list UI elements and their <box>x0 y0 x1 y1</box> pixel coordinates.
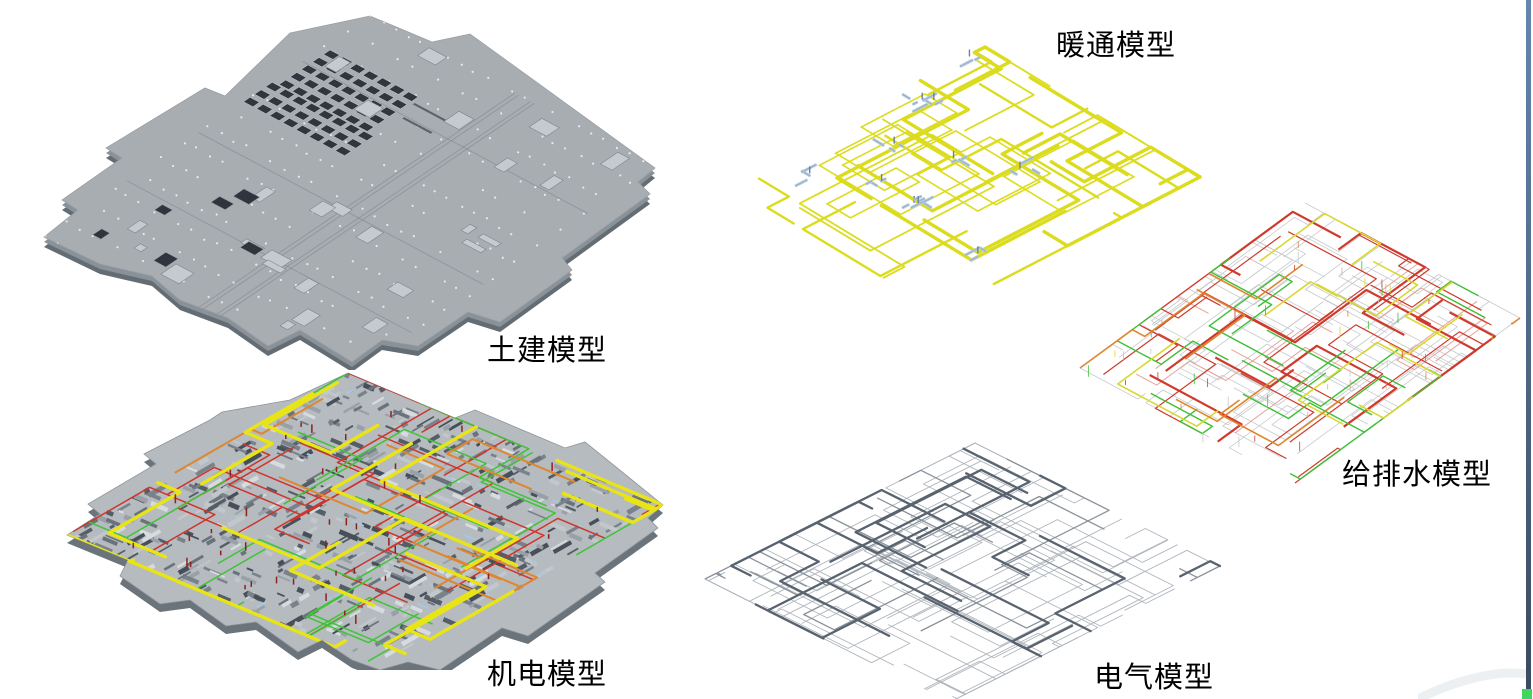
electrical-model-label: 电气模型 <box>1094 661 1214 695</box>
mep-model-rendering <box>60 368 675 670</box>
plumbing-model-label: 给排水模型 <box>1342 458 1492 492</box>
corner-arc-decoration <box>1418 655 1526 699</box>
hvac-model-label: 暖通模型 <box>1056 29 1176 63</box>
bim-models-figure: 土建模型 机电模型 暖通模型 给排水模型 电气模型 <box>0 0 1533 699</box>
structural-model-rendering <box>35 12 665 370</box>
mep-model-label: 机电模型 <box>487 658 607 692</box>
slide-right-border <box>1526 0 1531 699</box>
electrical-model-rendering <box>675 431 1233 699</box>
corner-green-mark <box>1522 689 1532 699</box>
structural-model-label: 土建模型 <box>487 334 607 368</box>
